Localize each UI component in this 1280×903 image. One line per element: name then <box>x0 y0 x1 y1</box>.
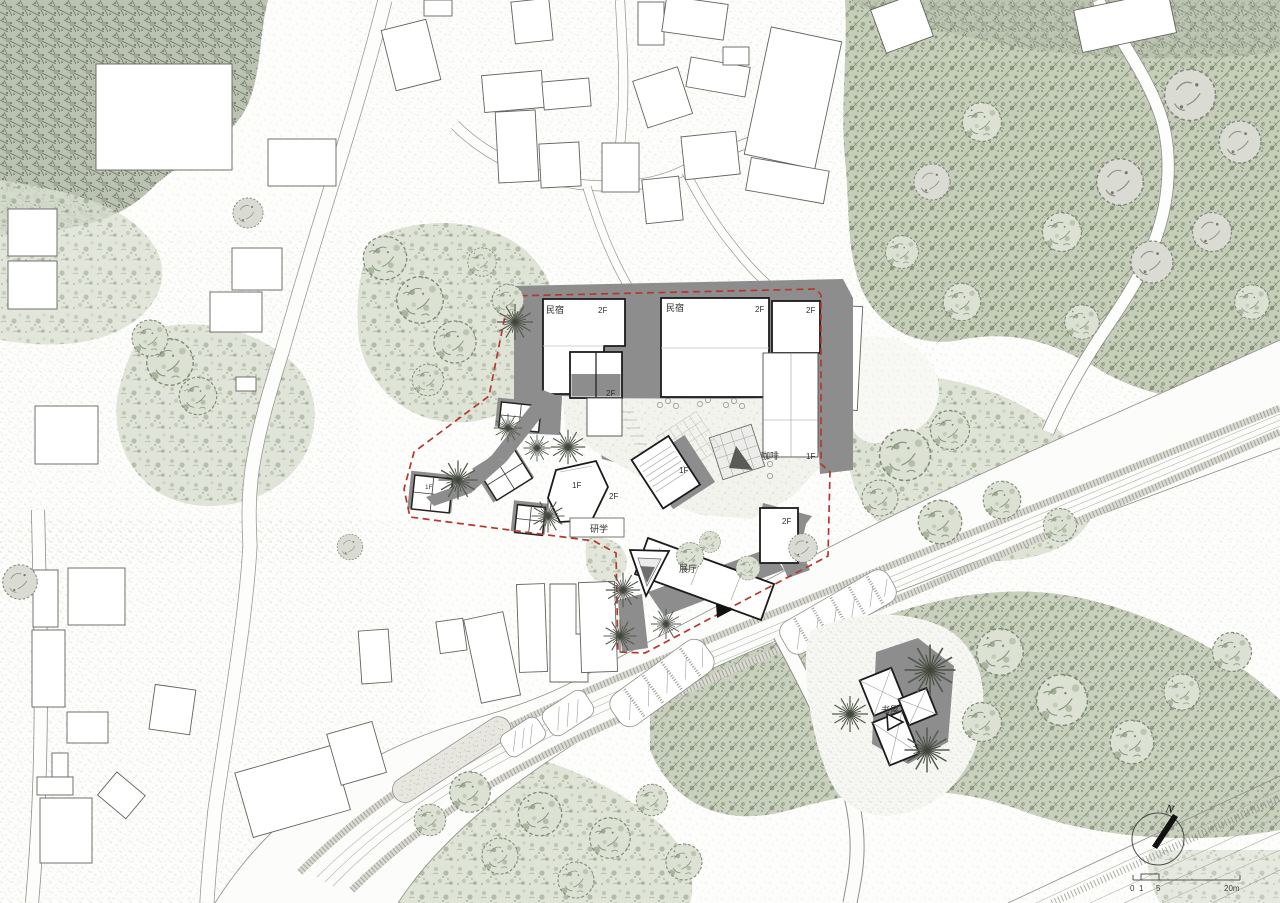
label-floor: 1F <box>806 452 815 461</box>
label-floor: 2F <box>609 492 618 501</box>
label-floor: 2F <box>606 389 615 398</box>
site-plan-drawing: 民宿 2F 民宿 2F 2F 2F 1F 咖啡 1F 1F 2F 研学 2F 展… <box>0 0 1280 903</box>
scale-tick-0: 0 <box>1130 884 1135 893</box>
label-floor: 2F <box>598 306 607 315</box>
label-floor: 2F <box>806 306 815 315</box>
scale-tick-5: 5 <box>1156 884 1161 893</box>
label-coffee: 咖啡 <box>761 450 779 461</box>
label-guesthouse-n: 民宿 <box>666 302 684 313</box>
label-floor: 2F <box>755 305 764 314</box>
label-floor: 2F <box>782 517 791 526</box>
label-floor: 1F <box>425 484 433 491</box>
label-floor: 1F <box>679 466 688 475</box>
label-guesthouse-nw: 民宿 <box>546 304 564 315</box>
label-exhibition: 展厅 <box>679 564 697 574</box>
label-floor: 1F <box>572 481 581 490</box>
scale-tick-1: 1 <box>1139 884 1144 893</box>
site-plan-page: 民宿 2F 民宿 2F 2F 2F 1F 咖啡 1F 1F 2F 研学 2F 展… <box>0 0 1280 903</box>
label-book-house: 书屋 <box>881 705 899 715</box>
label-study: 研学 <box>590 523 608 534</box>
coffee-block <box>763 353 818 457</box>
scale-tick-20m: 20m <box>1224 884 1240 893</box>
